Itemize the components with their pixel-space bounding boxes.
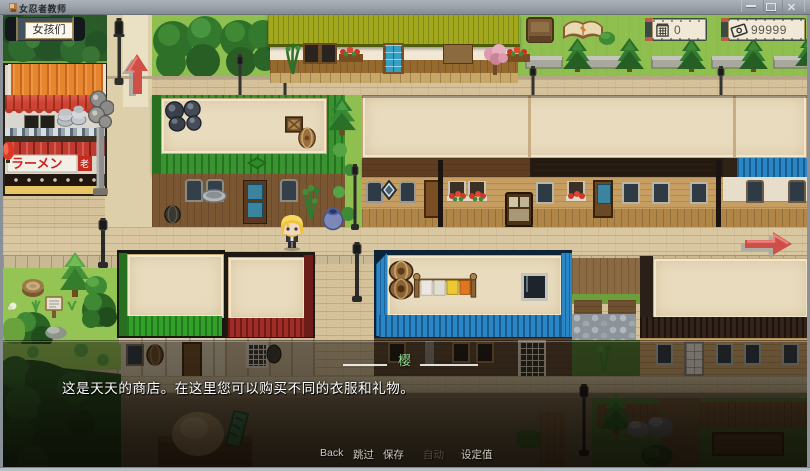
svg-text:ラーメン: ラーメン [11, 156, 62, 171]
